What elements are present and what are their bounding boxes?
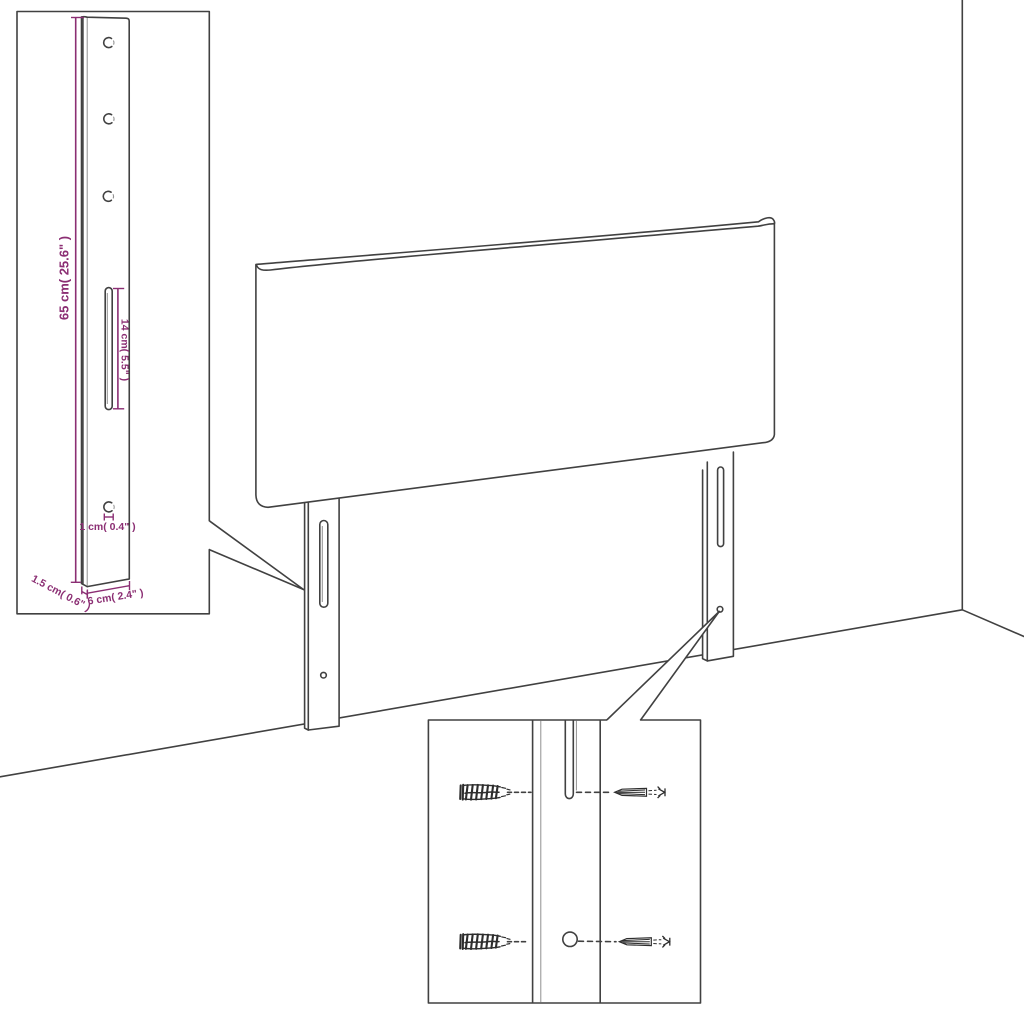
svg-text:1 cm( 0.4" ): 1 cm( 0.4" ) <box>79 521 135 533</box>
svg-text:65 cm( 25.6" ): 65 cm( 25.6" ) <box>57 236 72 320</box>
svg-text:14 cm( 5.5" ): 14 cm( 5.5" ) <box>118 319 130 381</box>
